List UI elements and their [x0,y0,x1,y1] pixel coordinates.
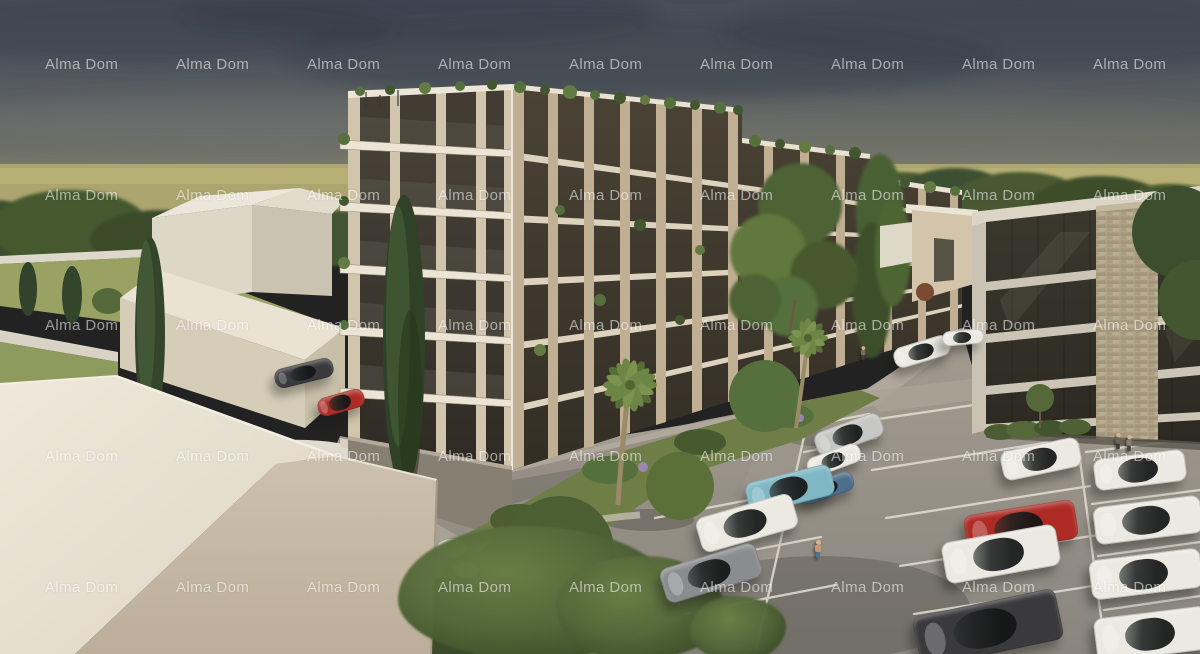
car-white-car-road-far [941,328,984,347]
pedestrian-garden [861,346,866,360]
pedestrian-entrance-2 [1126,435,1131,451]
render-scene: Alma DomAlma DomAlma DomAlma DomAlma Dom… [0,0,1200,654]
pedestrian-entrance-1 [1115,433,1120,449]
foliage-blob [690,596,786,654]
pedestrian-parking [815,540,821,558]
